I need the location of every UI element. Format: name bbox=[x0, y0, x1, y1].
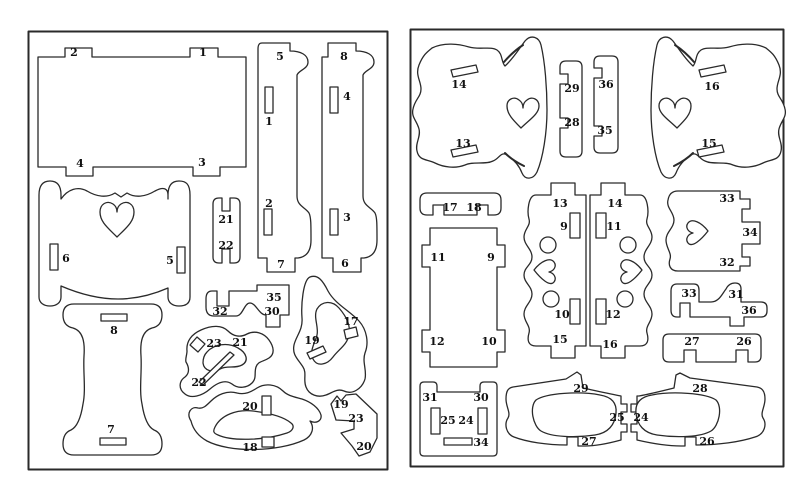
piece-label: 13 bbox=[552, 197, 567, 210]
slot bbox=[100, 438, 126, 445]
piece-side-rail-b bbox=[322, 43, 377, 272]
slot-9 bbox=[570, 213, 580, 238]
piece-label: 13 bbox=[455, 137, 470, 150]
piece-label: 29 bbox=[564, 82, 579, 95]
piece-label: 1 bbox=[265, 115, 273, 128]
notch-18 bbox=[262, 437, 274, 447]
piece-label: 22 bbox=[218, 239, 233, 252]
piece-label: 17 bbox=[442, 201, 457, 214]
piece-label: 1 bbox=[199, 46, 207, 59]
piece-label: 23 bbox=[348, 412, 363, 425]
piece-label: 30 bbox=[264, 305, 280, 318]
piece-bed-base-panel bbox=[38, 48, 246, 176]
slot-25 bbox=[431, 408, 440, 434]
piece-label: 6 bbox=[341, 257, 349, 270]
piece-label: 21 bbox=[232, 336, 247, 349]
piece-label: 7 bbox=[107, 423, 115, 436]
piece-label: 12 bbox=[605, 308, 620, 321]
piece-label: 24 bbox=[458, 414, 474, 427]
piece-label: 4 bbox=[76, 157, 84, 170]
piece-label: 18 bbox=[242, 441, 258, 454]
piece-label: 19 bbox=[304, 334, 319, 347]
rocker-left-cutout bbox=[532, 393, 616, 437]
slot bbox=[330, 87, 338, 113]
slot bbox=[265, 87, 273, 113]
piece-label: 16 bbox=[704, 80, 720, 93]
piece-label: 3 bbox=[343, 211, 351, 224]
piece-side-rail-a bbox=[258, 43, 311, 272]
piece-label: 26 bbox=[699, 435, 715, 448]
circle-cutout bbox=[620, 237, 636, 253]
piece-label: 2 bbox=[265, 197, 273, 210]
piece-label: 10 bbox=[481, 335, 497, 348]
piece-label: 12 bbox=[429, 335, 444, 348]
slot-24 bbox=[478, 408, 487, 434]
right-sheet: 1413292836351615171811912101314911101215… bbox=[411, 30, 786, 467]
piece-label: 25 bbox=[609, 411, 624, 424]
piece-spacer-36-35 bbox=[594, 56, 618, 153]
piece-label: 20 bbox=[356, 440, 372, 453]
piece-label: 8 bbox=[110, 324, 118, 337]
piece-label: 33 bbox=[681, 287, 696, 300]
piece-label: 27 bbox=[684, 335, 699, 348]
cut-pattern-drawing: 2143581243766521228735303223212219172018… bbox=[0, 0, 800, 503]
piece-label: 15 bbox=[552, 333, 567, 346]
piece-label: 14 bbox=[607, 197, 623, 210]
circle-cutout bbox=[543, 291, 559, 307]
slot-34 bbox=[444, 438, 472, 445]
slot bbox=[50, 244, 58, 270]
piece-label: 32 bbox=[212, 305, 227, 318]
slot bbox=[177, 247, 185, 273]
piece-label: 16 bbox=[602, 338, 618, 351]
piece-label: 23 bbox=[206, 337, 221, 350]
piece-label: 31 bbox=[422, 391, 437, 404]
slot bbox=[330, 209, 338, 235]
piece-crossbar-17-18 bbox=[420, 193, 501, 215]
piece-label: 36 bbox=[598, 78, 614, 91]
piece-label: 3 bbox=[198, 156, 206, 169]
piece-label: 30 bbox=[473, 391, 489, 404]
piece-label: 24 bbox=[633, 411, 649, 424]
piece-label: 18 bbox=[466, 201, 482, 214]
piece-connector-21-22 bbox=[213, 198, 240, 263]
piece-label: 34 bbox=[473, 436, 489, 449]
piece-spacer-29-28 bbox=[560, 61, 582, 157]
slot-20 bbox=[262, 396, 271, 415]
piece-label: 29 bbox=[573, 382, 588, 395]
piece-label: 31 bbox=[728, 288, 743, 301]
piece-label: 28 bbox=[692, 382, 708, 395]
piece-label: 21 bbox=[218, 213, 233, 226]
piece-label: 5 bbox=[166, 254, 174, 267]
piece-label: 14 bbox=[451, 78, 467, 91]
piece-label: 9 bbox=[487, 251, 495, 264]
slot bbox=[264, 209, 272, 235]
piece-label: 15 bbox=[701, 137, 716, 150]
piece-label: 35 bbox=[597, 124, 612, 137]
piece-label: 20 bbox=[242, 400, 258, 413]
piece-label: 8 bbox=[340, 50, 348, 63]
piece-label: 11 bbox=[606, 220, 621, 233]
piece-label: 25 bbox=[440, 414, 455, 427]
circle-cutout bbox=[617, 291, 633, 307]
piece-label: 11 bbox=[430, 251, 445, 264]
piece-label: 26 bbox=[736, 335, 752, 348]
piece-label: 32 bbox=[719, 256, 734, 269]
piece-label: 2 bbox=[70, 46, 78, 59]
piece-label: 35 bbox=[266, 291, 281, 304]
piece-label: 4 bbox=[343, 90, 351, 103]
left-sheet: 2143581243766521228735303223212219172018… bbox=[29, 32, 388, 470]
piece-label: 6 bbox=[62, 252, 70, 265]
piece-label: 9 bbox=[560, 220, 568, 233]
piece-label: 5 bbox=[276, 50, 284, 63]
pattern-sheet-page: 2143581243766521228735303223212219172018… bbox=[0, 0, 800, 503]
circle-cutout bbox=[540, 237, 556, 253]
piece-label: 33 bbox=[719, 192, 734, 205]
piece-label: 19 bbox=[333, 398, 348, 411]
slot-11 bbox=[596, 213, 606, 238]
piece-label: 34 bbox=[742, 226, 758, 239]
piece-label: 22 bbox=[191, 376, 206, 389]
piece-headboard bbox=[39, 181, 190, 306]
slot bbox=[101, 314, 127, 321]
piece-label: 28 bbox=[564, 116, 580, 129]
piece-label: 10 bbox=[554, 308, 570, 321]
piece-label: 17 bbox=[343, 315, 358, 328]
piece-label: 7 bbox=[277, 258, 285, 271]
piece-label: 27 bbox=[581, 435, 596, 448]
slot-10 bbox=[570, 299, 580, 324]
piece-label: 36 bbox=[741, 304, 757, 317]
